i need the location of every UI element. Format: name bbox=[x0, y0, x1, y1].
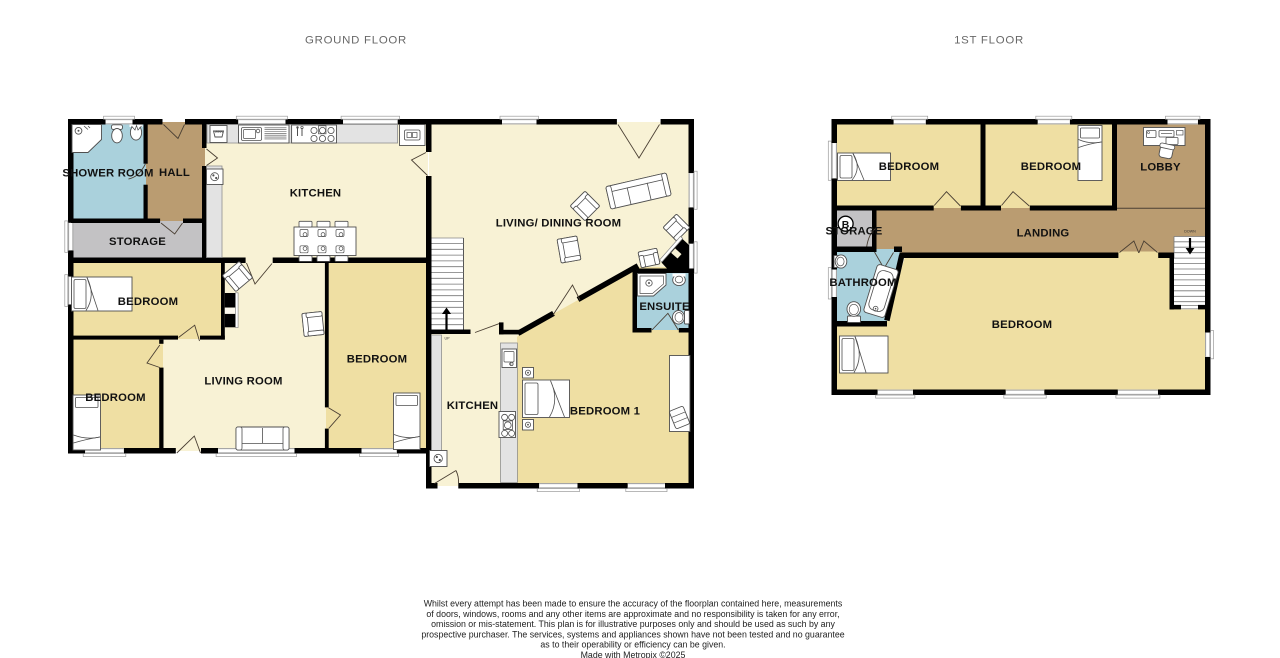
svg-text:LOBBY: LOBBY bbox=[1140, 162, 1181, 174]
svg-text:Whilst every attempt has been: Whilst every attempt has been made to en… bbox=[424, 599, 843, 609]
svg-text:prospective purchaser. The ser: prospective purchaser. The services, sys… bbox=[421, 629, 844, 639]
svg-text:LANDING: LANDING bbox=[1017, 228, 1070, 240]
svg-text:ENSUITE: ENSUITE bbox=[639, 301, 690, 313]
svg-text:UP: UP bbox=[445, 337, 451, 341]
svg-text:BEDROOM: BEDROOM bbox=[85, 392, 145, 404]
svg-text:STORAGE: STORAGE bbox=[109, 236, 166, 248]
svg-text:BEDROOM 1: BEDROOM 1 bbox=[570, 406, 640, 418]
svg-text:KITCHEN: KITCHEN bbox=[447, 400, 499, 412]
svg-text:BEDROOM: BEDROOM bbox=[992, 319, 1052, 331]
svg-text:GROUND FLOOR: GROUND FLOOR bbox=[305, 35, 407, 47]
svg-text:KITCHEN: KITCHEN bbox=[290, 188, 342, 200]
svg-text:as to their operability or eff: as to their operability or efficiency ca… bbox=[540, 640, 725, 650]
svg-text:SHOWER ROOM: SHOWER ROOM bbox=[62, 168, 153, 180]
svg-text:BEDROOM: BEDROOM bbox=[879, 161, 939, 173]
svg-text:HALL: HALL bbox=[159, 167, 190, 179]
svg-text:DOWN: DOWN bbox=[1184, 230, 1196, 234]
svg-text:BEDROOM: BEDROOM bbox=[1021, 161, 1081, 173]
svg-text:STORAGE: STORAGE bbox=[825, 226, 882, 238]
svg-text:BEDROOM: BEDROOM bbox=[347, 354, 407, 366]
svg-text:BATHROOM: BATHROOM bbox=[829, 277, 896, 289]
svg-text:of doors, windows, rooms and a: of doors, windows, rooms and any other i… bbox=[426, 609, 839, 619]
svg-text:LIVING/ DINING ROOM: LIVING/ DINING ROOM bbox=[496, 218, 622, 230]
svg-text:omission or mis-statement. Thi: omission or mis-statement. This plan is … bbox=[431, 619, 835, 629]
svg-text:BEDROOM: BEDROOM bbox=[118, 296, 178, 308]
svg-text:Made with Metropix ©2025: Made with Metropix ©2025 bbox=[581, 650, 686, 658]
svg-text:1ST FLOOR: 1ST FLOOR bbox=[954, 35, 1024, 47]
svg-text:LIVING ROOM: LIVING ROOM bbox=[204, 376, 282, 388]
